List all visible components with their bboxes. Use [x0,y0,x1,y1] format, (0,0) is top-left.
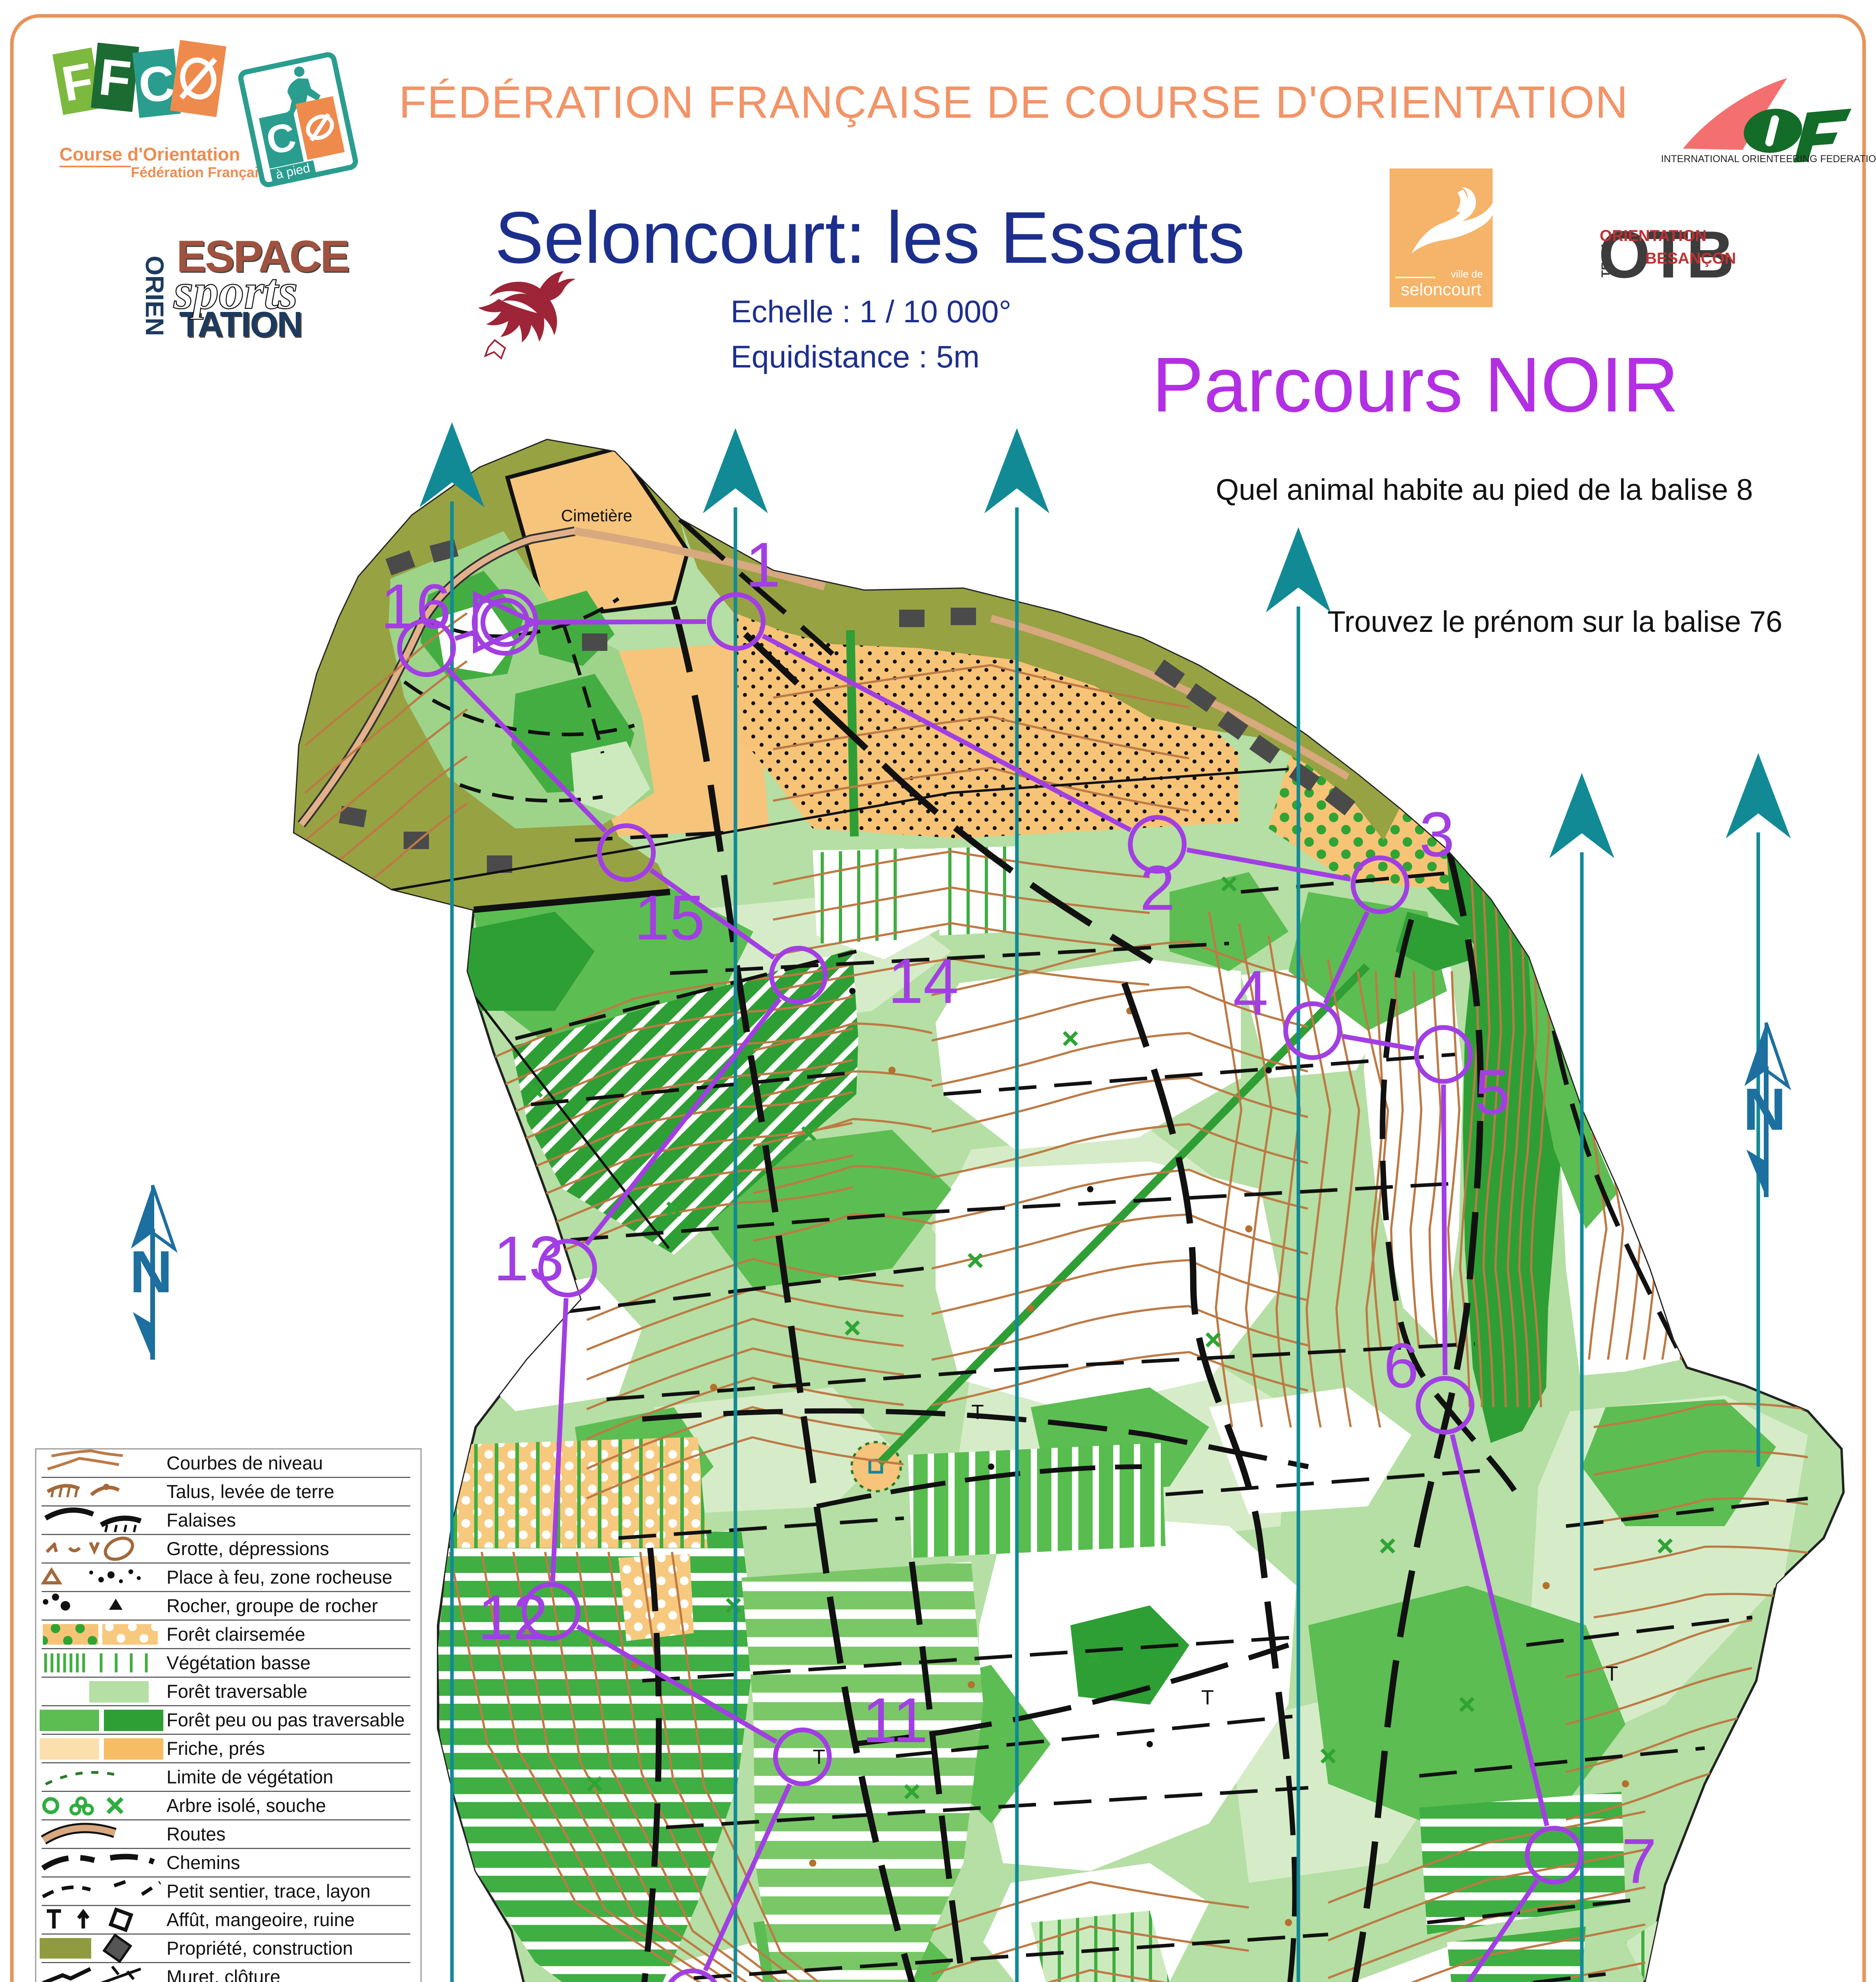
svg-text:Quel animal habite au pied de: Quel animal habite au pied de la balise … [1216,473,1753,506]
svg-text:sports: sports [173,263,298,319]
svg-text:Fédération Française: Fédération Française [131,164,274,180]
svg-text:Courbes de niveau: Courbes de niveau [167,1452,323,1473]
svg-text:10: 10 [613,1978,683,1982]
svg-text:TEAM: TEAM [1599,244,1612,277]
svg-text:Grotte, dépressions: Grotte, dépressions [167,1538,329,1559]
svg-text:Course d'Orientation: Course d'Orientation [59,144,240,165]
svg-text:BESANÇON: BESANÇON [1645,250,1736,267]
svg-text:Echelle : 1 / 10 000°: Echelle : 1 / 10 000° [731,294,1011,329]
svg-text:Limite de végétation: Limite de végétation [167,1766,333,1787]
svg-text:Forêt clairsemée: Forêt clairsemée [167,1624,305,1645]
svg-text:seloncourt: seloncourt [1401,280,1481,299]
svg-text:Talus, levée de terre: Talus, levée de terre [167,1481,334,1502]
svg-text:Chemins: Chemins [167,1852,240,1873]
svg-text:T: T [813,1746,825,1769]
svg-text:Affût, mangeoire, ruine: Affût, mangeoire, ruine [167,1909,355,1930]
svg-text:Petit sentier, trace, layon: Petit sentier, trace, layon [167,1881,371,1902]
svg-text:Propriété, construction: Propriété, construction [167,1938,353,1959]
svg-text:7: 7 [1621,1825,1657,1896]
svg-text:14: 14 [888,945,959,1016]
svg-text:Falaises: Falaises [167,1509,236,1531]
svg-text:16: 16 [381,571,451,642]
svg-text:Parcours NOIR: Parcours NOIR [1152,341,1679,428]
svg-text:5: 5 [1475,1056,1510,1127]
svg-text:FÉDÉRATION FRANÇAISE DE COURSE: FÉDÉRATION FRANÇAISE DE COURSE D'ORIENTA… [399,77,1628,128]
svg-text:11: 11 [862,1685,928,1756]
svg-text:Forêt traversable: Forêt traversable [167,1681,307,1702]
svg-text:Friche, prés: Friche, prés [167,1738,265,1759]
svg-text:T: T [1606,1663,1618,1685]
svg-text:3: 3 [1419,799,1455,870]
svg-text:Arbre isolé, souche: Arbre isolé, souche [167,1795,326,1816]
svg-text:Place à feu, zone rocheuse: Place à feu, zone rocheuse [167,1567,392,1588]
svg-text:2: 2 [1140,852,1175,923]
svg-text:Forêt peu ou pas traversable: Forêt peu ou pas traversable [167,1709,405,1730]
svg-text:Seloncourt: les Essarts: Seloncourt: les Essarts [495,197,1245,279]
svg-text:T: T [1201,1686,1214,1709]
svg-text:Cimetière: Cimetière [561,506,632,525]
svg-text:N: N [1743,1076,1786,1142]
svg-text:ORIENTATION: ORIENTATION [1600,227,1707,245]
svg-text:Equidistance : 5m: Equidistance : 5m [731,339,980,374]
svg-text:4: 4 [1233,957,1268,1028]
svg-text:12: 12 [478,1582,548,1653]
svg-text:Routes: Routes [167,1823,226,1844]
svg-text:15: 15 [634,882,705,953]
svg-text:Muret, clôture: Muret, clôture [167,1966,280,1982]
svg-text:Végétation basse: Végétation basse [167,1652,310,1673]
svg-text:N: N [130,1238,172,1305]
svg-text:1: 1 [745,529,781,600]
svg-text:ville de: ville de [1451,268,1483,280]
svg-text:13: 13 [494,1223,564,1294]
svg-text:T: T [971,1401,984,1424]
svg-text:Rocher, groupe de rocher: Rocher, groupe de rocher [167,1595,378,1616]
svg-text:6: 6 [1384,1330,1419,1401]
svg-text:ORIEN: ORIEN [140,256,169,336]
svg-text:INTERNATIONAL ORIENTEERING FED: INTERNATIONAL ORIENTEERING FEDERATION [1661,153,1876,165]
svg-text:Trouvez le prénom sur la balis: Trouvez le prénom sur la balise 76 [1327,605,1782,638]
svg-text:F: F [96,48,134,109]
